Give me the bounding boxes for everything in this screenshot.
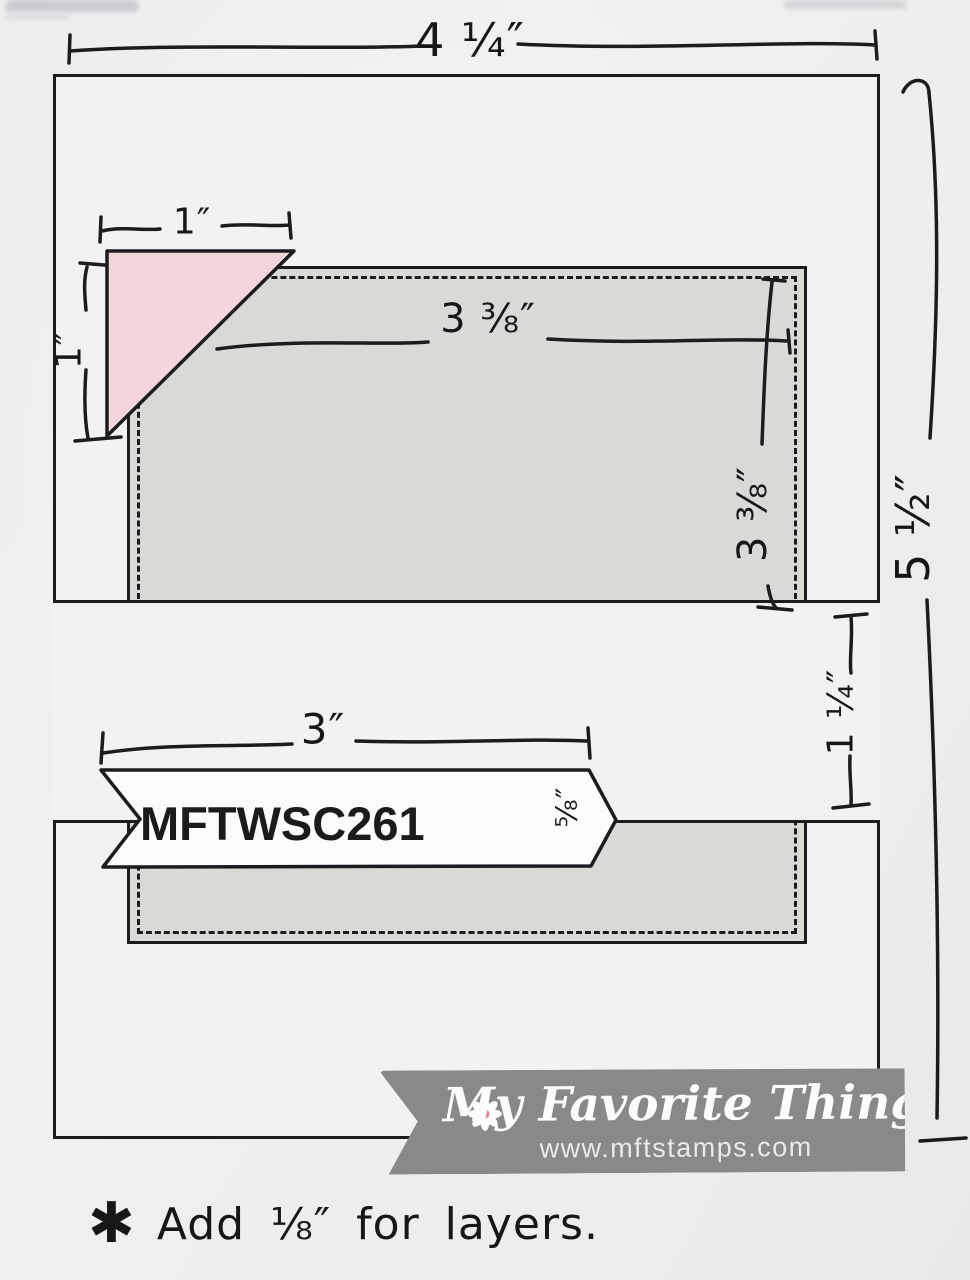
footnote: ✱ Add ⅛″ for layers. xyxy=(88,1196,599,1252)
dim-line-card-width xyxy=(69,35,70,63)
scanned-card-sketch: { "sketch": { "code": "MFTWSC261", "dims… xyxy=(0,0,970,1280)
label-banner-width: 3″ xyxy=(301,705,345,754)
dim-line-card-width xyxy=(518,44,875,47)
mft-logo-flag: My Favorite Things www.mftstamps.com xyxy=(381,1067,906,1174)
dim-line-card-height xyxy=(929,93,937,438)
horizontal-band xyxy=(53,600,880,823)
dim-line-card-height xyxy=(920,1138,966,1141)
scan-artifact xyxy=(6,15,70,20)
label-card-height: 5 ½″ xyxy=(886,473,940,583)
dim-line-card-width xyxy=(875,31,877,59)
label-corner-width: 1″ xyxy=(173,202,211,243)
label-band-height: 1 ¼″ xyxy=(821,669,862,756)
sketch-code: MFTWSC261 xyxy=(140,796,392,851)
label-corner-height: 1″ xyxy=(49,331,90,369)
label-panel-width: 3 ⅜″ xyxy=(440,296,536,342)
brand-name: My Favorite Things xyxy=(443,1075,893,1133)
label-card-width: 4 ¼″ xyxy=(415,13,525,67)
footnote-text: Add ⅛″ for layers. xyxy=(157,1199,599,1250)
brand-url: www.mftstamps.com xyxy=(511,1132,841,1165)
label-panel-height: 3 ⅜″ xyxy=(730,466,776,562)
dim-line-card-width xyxy=(70,46,424,51)
asterisk-icon: ✱ xyxy=(88,1196,135,1252)
dim-line-card-height xyxy=(903,80,929,93)
dim-line-card-height xyxy=(927,600,938,1118)
scan-artifact xyxy=(784,0,906,9)
label-banner-height: ⅝″ xyxy=(550,787,584,828)
scan-artifact xyxy=(6,0,138,12)
